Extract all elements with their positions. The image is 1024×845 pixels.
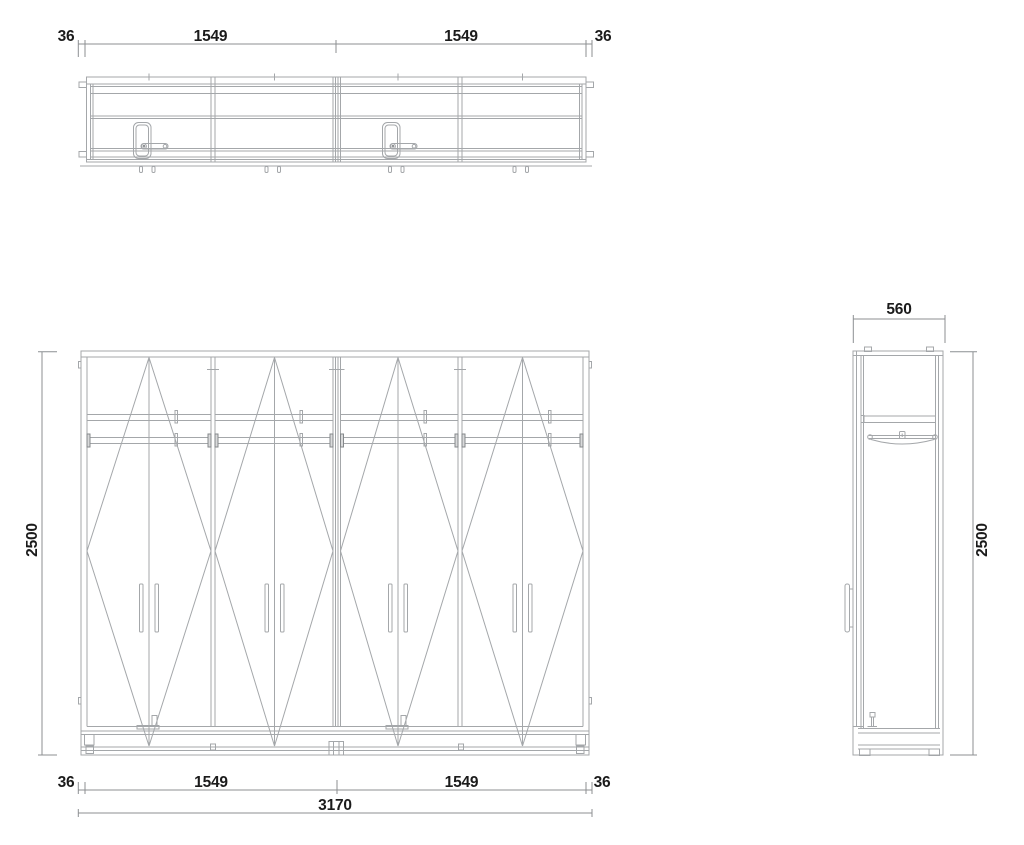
dim-front-height: 2500 [24,523,41,557]
dim-plan-right-bay: 1549 [444,28,478,45]
dim-plan-left-bay: 1549 [194,28,228,45]
drawing-canvas: 36 1549 1549 36 36 1549 1549 36 3170 250… [0,0,1024,845]
dimension-side-height: 2500 [950,352,991,755]
dim-front-overall-width: 3170 [318,797,352,814]
dim-front-right-margin: 36 [594,774,611,791]
front-dividers [207,357,466,727]
side-elevation [845,347,943,756]
plan-lock-right [383,123,418,159]
wardrobe-technical-drawing: 36 1549 1549 36 36 1549 1549 36 3170 250… [0,0,1024,845]
plan-hinge-marks [140,167,529,173]
dim-front-left-bay: 1549 [194,774,228,791]
dim-front-left-margin: 36 [58,774,75,791]
dim-front-right-bay: 1549 [445,774,479,791]
side-latch-pin [868,713,878,727]
side-handle [845,584,853,632]
dimension-front-height: 2500 [24,352,57,755]
dimension-side-depth: 560 [853,301,945,343]
dim-plan-left-margin: 36 [58,28,75,45]
plan-view [79,74,594,173]
dim-side-height: 2500 [974,523,991,557]
dimension-plan-top: 36 1549 1549 36 [58,28,612,57]
front-elevation [79,351,592,755]
dim-plan-right-margin: 36 [595,28,612,45]
side-plinth [853,727,940,756]
side-shelf [861,416,936,423]
side-hanger-rail [868,432,938,445]
plan-lock-left [134,123,169,159]
plan-dividers [211,77,462,162]
front-plinth [81,731,589,755]
dim-side-depth: 560 [886,301,911,318]
dimension-front-bottom: 36 1549 1549 36 3170 [58,774,611,817]
